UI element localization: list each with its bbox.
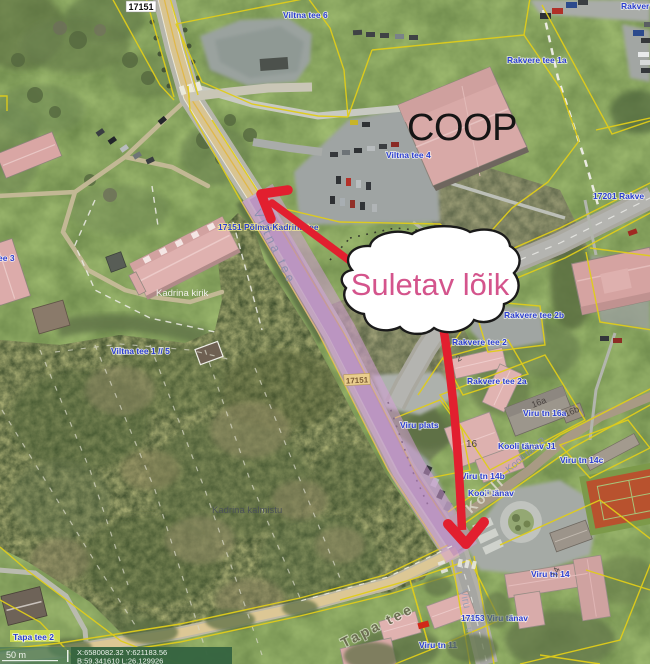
svg-text:Rakvere tee 1a: Rakvere tee 1a [507,55,567,65]
svg-text:Rakvere tee 2: Rakvere tee 2 [452,337,507,347]
svg-text:COOP: COOP [407,107,517,149]
svg-text:Kadrina kirik: Kadrina kirik [156,288,209,299]
svg-text:Rakver: Rakver [621,1,650,11]
svg-text:B:59.341610 L:26.129926: B:59.341610 L:26.129926 [77,657,163,664]
svg-text:Kadrina kalmistu: Kadrina kalmistu [212,505,282,516]
svg-text:ee 3: ee 3 [0,253,15,263]
svg-text:50 m: 50 m [6,650,26,660]
svg-text:Viru tn 16a: Viru tn 16a [523,408,567,418]
svg-text:16: 16 [466,439,478,450]
svg-text:Viru plats: Viru plats [400,420,439,430]
svg-text:Viltna tee 6: Viltna tee 6 [283,10,328,20]
svg-text:Viru tn 14c: Viru tn 14c [560,455,604,465]
svg-text:Suletav lõik: Suletav lõik [351,267,510,302]
svg-text:Rakvere tee 2a: Rakvere tee 2a [467,376,527,386]
svg-text:17201 Rakve: 17201 Rakve [593,191,644,201]
svg-text:Viltna tee 4: Viltna tee 4 [386,150,431,160]
svg-text:17151: 17151 [128,2,153,12]
svg-text:Rakvere tee 2b: Rakvere tee 2b [504,310,564,320]
svg-text:17151: 17151 [346,375,369,385]
svg-text:Tapa tee 2: Tapa tee 2 [13,632,54,642]
svg-text:Viltna tee 1 // 5: Viltna tee 1 // 5 [111,346,170,356]
